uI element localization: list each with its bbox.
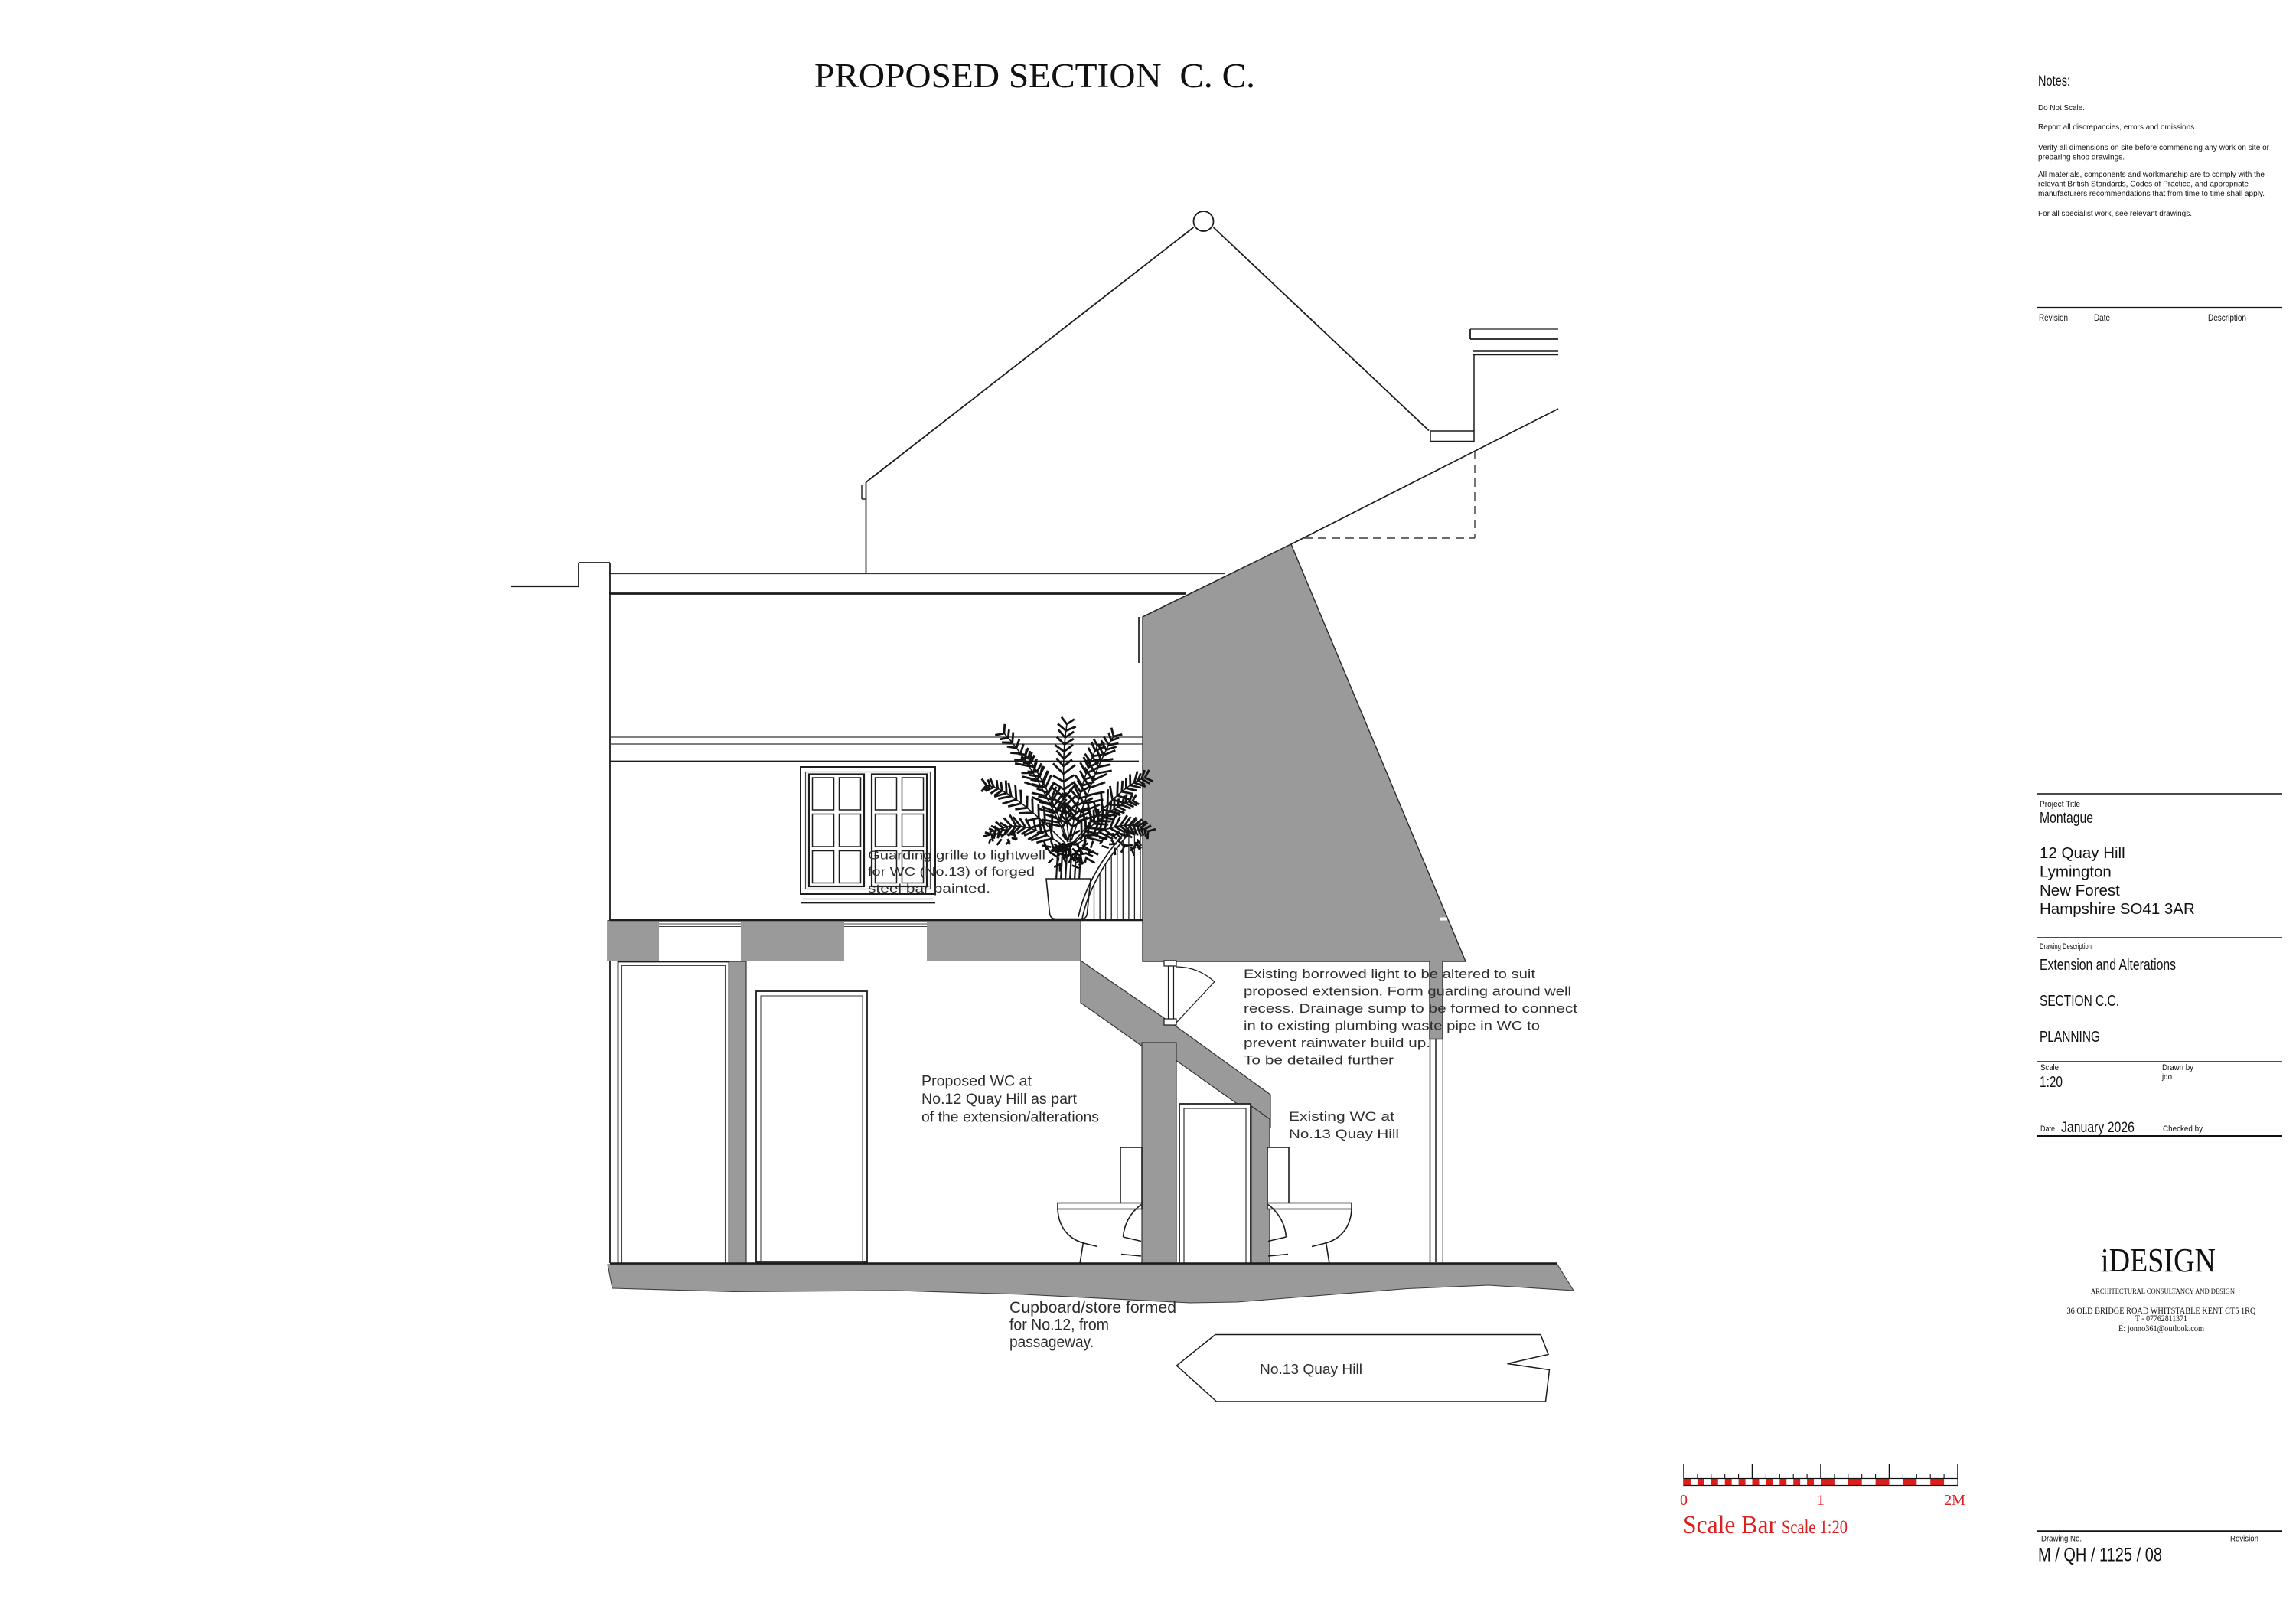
svg-text:2M: 2M: [1944, 1492, 1965, 1509]
svg-text:Scale Bar: Scale Bar: [1683, 1511, 1777, 1539]
svg-text:To be detailed further: To be detailed further: [1244, 1054, 1394, 1068]
svg-text:passageway.: passageway.: [1009, 1333, 1094, 1351]
svg-text:ARCHITECTURAL CONSULTANCY AND: ARCHITECTURAL CONSULTANCY AND DESIGN: [2091, 1287, 2235, 1295]
svg-text:Revision: Revision: [2039, 312, 2068, 323]
svg-text:Drawing Description: Drawing Description: [2040, 942, 2092, 951]
svg-text:Extension and Alterations: Extension and Alterations: [2040, 957, 2176, 974]
svg-text:relevant British Standards, Co: relevant British Standards, Codes of Pra…: [2038, 181, 2249, 189]
svg-text:No.13 Quay Hill: No.13 Quay Hill: [1289, 1128, 1399, 1141]
svg-text:No.13 Quay Hill: No.13 Quay Hill: [1260, 1362, 1362, 1377]
svg-text:Description: Description: [2208, 312, 2246, 323]
svg-text:PLANNING: PLANNING: [2040, 1029, 2100, 1046]
svg-text:iDESIGN: iDESIGN: [2101, 1242, 2216, 1279]
svg-text:For all specialist work, see r: For all specialist work, see relevant dr…: [2038, 210, 2192, 218]
svg-text:of the extension/alterations: of the extension/alterations: [921, 1109, 1099, 1125]
svg-text:Do Not Scale.: Do Not Scale.: [2038, 104, 2085, 113]
svg-text:Date: Date: [2094, 312, 2110, 323]
svg-text:Checked by: Checked by: [2163, 1124, 2203, 1134]
svg-text:Verify all dimensions on site: Verify all dimensions on site before com…: [2038, 144, 2270, 152]
svg-text:No.12 Quay Hill as part: No.12 Quay Hill as part: [921, 1092, 1078, 1108]
svg-text:0: 0: [1680, 1492, 1688, 1509]
svg-text:Notes:: Notes:: [2038, 73, 2070, 90]
svg-text:for WC (No.13) of forged: for WC (No.13) of forged: [868, 866, 1035, 879]
svg-text:for No.12, from: for No.12, from: [1009, 1315, 1109, 1333]
svg-text:1:20: 1:20: [2040, 1074, 2063, 1091]
svg-text:Hampshire SO41 3AR: Hampshire SO41 3AR: [2040, 900, 2195, 918]
svg-text:Lymington: Lymington: [2040, 863, 2112, 880]
svg-text:Date: Date: [2040, 1124, 2055, 1134]
svg-text:recess. Drainage sump to be fo: recess. Drainage sump to be formed to co…: [1244, 1002, 1578, 1016]
svg-text:Guarding grille to lightwell: Guarding grille to lightwell: [868, 850, 1045, 863]
svg-text:T - 07762811371: T - 07762811371: [2135, 1314, 2187, 1323]
svg-text:in to existing plumbing waste: in to existing plumbing waste pipe in WC…: [1244, 1020, 1540, 1033]
svg-text:prevent rainwater build up.: prevent rainwater build up.: [1244, 1036, 1430, 1050]
svg-text:M / QH / 1125 / 08: M / QH / 1125 / 08: [2038, 1545, 2162, 1566]
svg-text:manufacturers recommendations: manufacturers recommendations that from …: [2038, 190, 2265, 198]
svg-text:Drawn by: Drawn by: [2162, 1063, 2193, 1072]
svg-text:PROPOSED SECTION C. C.: PROPOSED SECTION C. C.: [814, 57, 1255, 95]
svg-text:12 Quay Hill: 12 Quay Hill: [2040, 844, 2125, 862]
svg-text:Montague: Montague: [2040, 809, 2093, 827]
svg-text:New Forest: New Forest: [2040, 882, 2120, 899]
svg-text:Revision: Revision: [2230, 1535, 2258, 1544]
svg-text:Cupboard/store formed: Cupboard/store formed: [1009, 1298, 1176, 1317]
svg-text:Proposed WC at: Proposed WC at: [921, 1073, 1032, 1089]
svg-text:January 2026: January 2026: [2061, 1120, 2135, 1136]
svg-text:proposed extension. Form guard: proposed extension. Form guarding around…: [1244, 985, 1571, 999]
svg-text:E: jonno361@outlook.com: E: jonno361@outlook.com: [2118, 1324, 2204, 1333]
svg-text:Existing borrowed light to be: Existing borrowed light to be altered to…: [1244, 968, 1536, 981]
svg-text:jdo: jdo: [2161, 1073, 2172, 1082]
svg-text:Scale 1:20: Scale 1:20: [1782, 1517, 1848, 1538]
svg-text:preparing shop drawings.: preparing shop drawings.: [2038, 154, 2125, 162]
svg-text:All materials, components and: All materials, components and workmanshi…: [2038, 171, 2265, 179]
svg-text:Drawing No.: Drawing No.: [2041, 1535, 2082, 1544]
svg-text:Report all discrepancies, erro: Report all discrepancies, errors and omi…: [2038, 123, 2197, 132]
svg-text:Existing WC at: Existing WC at: [1289, 1110, 1395, 1124]
svg-text:1: 1: [1817, 1492, 1825, 1509]
svg-text:Scale: Scale: [2040, 1063, 2059, 1072]
svg-text:Project Title: Project Title: [2040, 800, 2080, 809]
svg-text:SECTION C.C.: SECTION C.C.: [2040, 993, 2119, 1010]
svg-text:steel bar painted.: steel bar painted.: [868, 883, 990, 896]
